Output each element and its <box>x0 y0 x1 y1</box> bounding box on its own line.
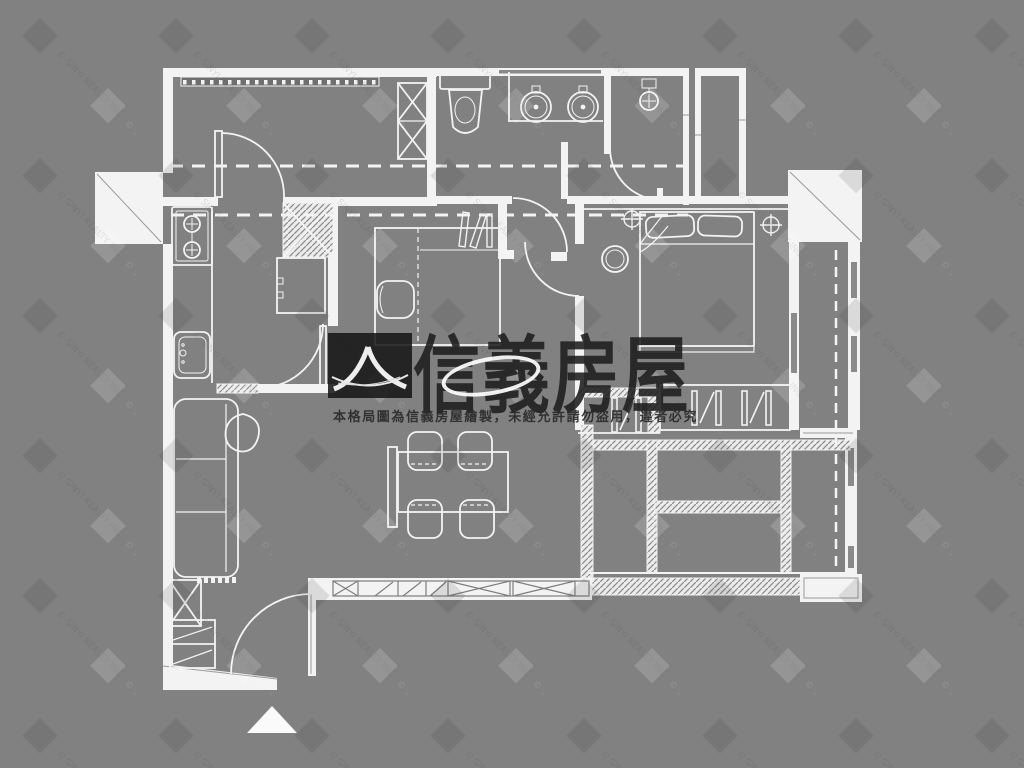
sinyi-logo-icon <box>328 333 412 398</box>
disclaimer-text: 本格局圖為信義房屋繪製，未經允許請勿盜用，違者必究 <box>333 406 698 425</box>
floorplan-canvas: © SINYI REALTY INC © SINYI REALTY INC <box>0 0 1024 768</box>
